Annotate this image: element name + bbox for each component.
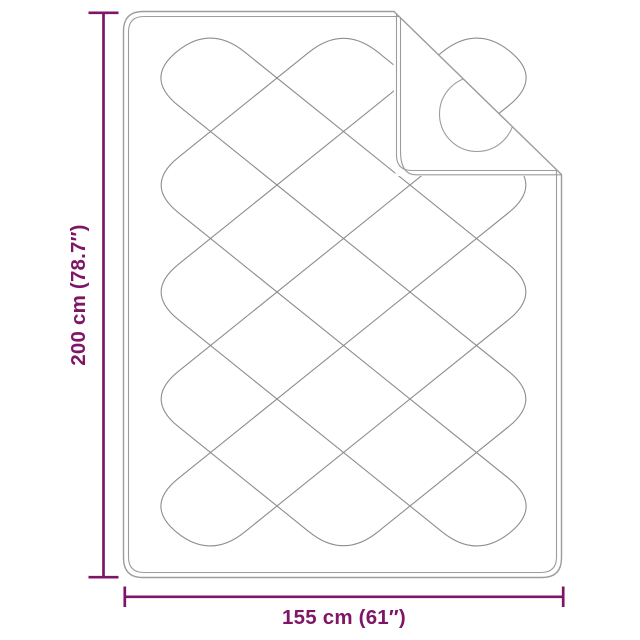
width-label: 155 cm (61″) xyxy=(282,606,406,630)
blanket-outline xyxy=(124,12,562,578)
dimension-annotations xyxy=(89,12,565,608)
diagram-canvas xyxy=(0,0,640,640)
blanket-outer-edge xyxy=(124,12,562,578)
product-dimension-diagram: 200 cm (78.7″) 155 cm (61″) xyxy=(0,0,640,640)
blanket-inner-seam xyxy=(129,17,557,573)
height-label: 200 cm (78.7″) xyxy=(67,224,91,365)
quilting-pattern xyxy=(161,38,526,546)
fold-circle-motif xyxy=(440,77,515,152)
